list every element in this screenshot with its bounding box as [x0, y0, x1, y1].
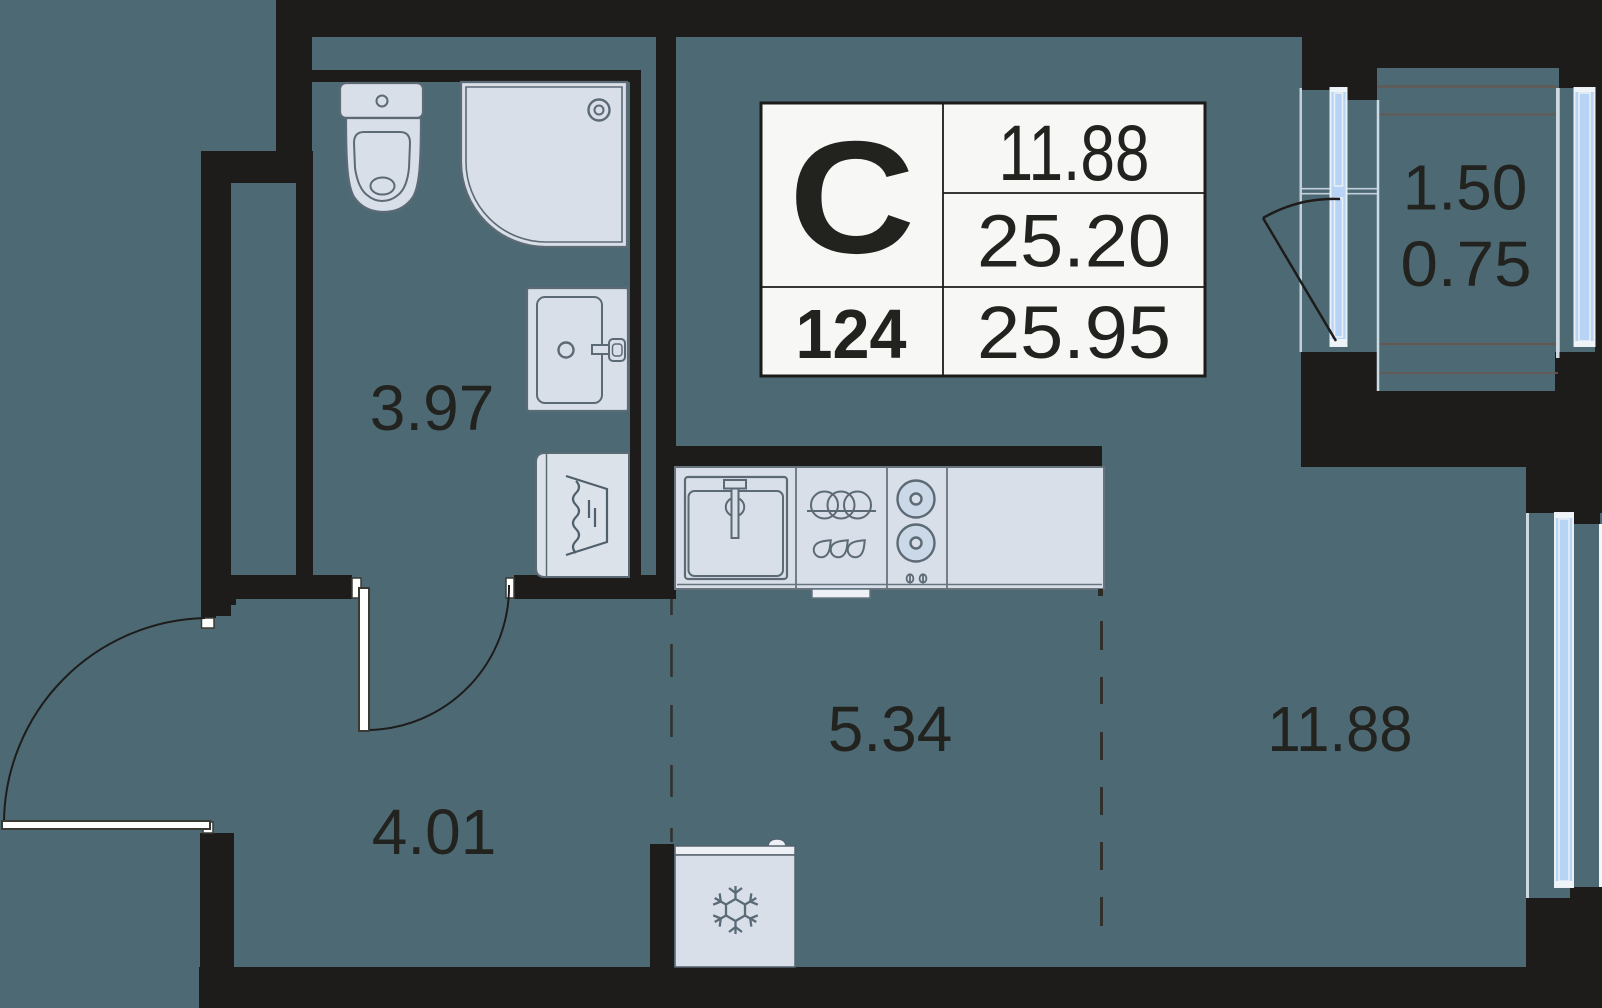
svg-text:С: С — [789, 108, 915, 287]
svg-text:4.01: 4.01 — [372, 796, 497, 868]
svg-text:5.34: 5.34 — [828, 693, 953, 765]
svg-text:3.97: 3.97 — [370, 372, 495, 444]
svg-text:11.88: 11.88 — [1268, 693, 1413, 765]
svg-text:25.20: 25.20 — [977, 200, 1171, 283]
svg-text:124: 124 — [796, 295, 907, 373]
svg-text:0.75: 0.75 — [1401, 228, 1532, 300]
svg-text:1.50: 1.50 — [1403, 152, 1528, 224]
svg-text:11.88: 11.88 — [999, 108, 1150, 197]
svg-text:25.95: 25.95 — [977, 291, 1171, 374]
